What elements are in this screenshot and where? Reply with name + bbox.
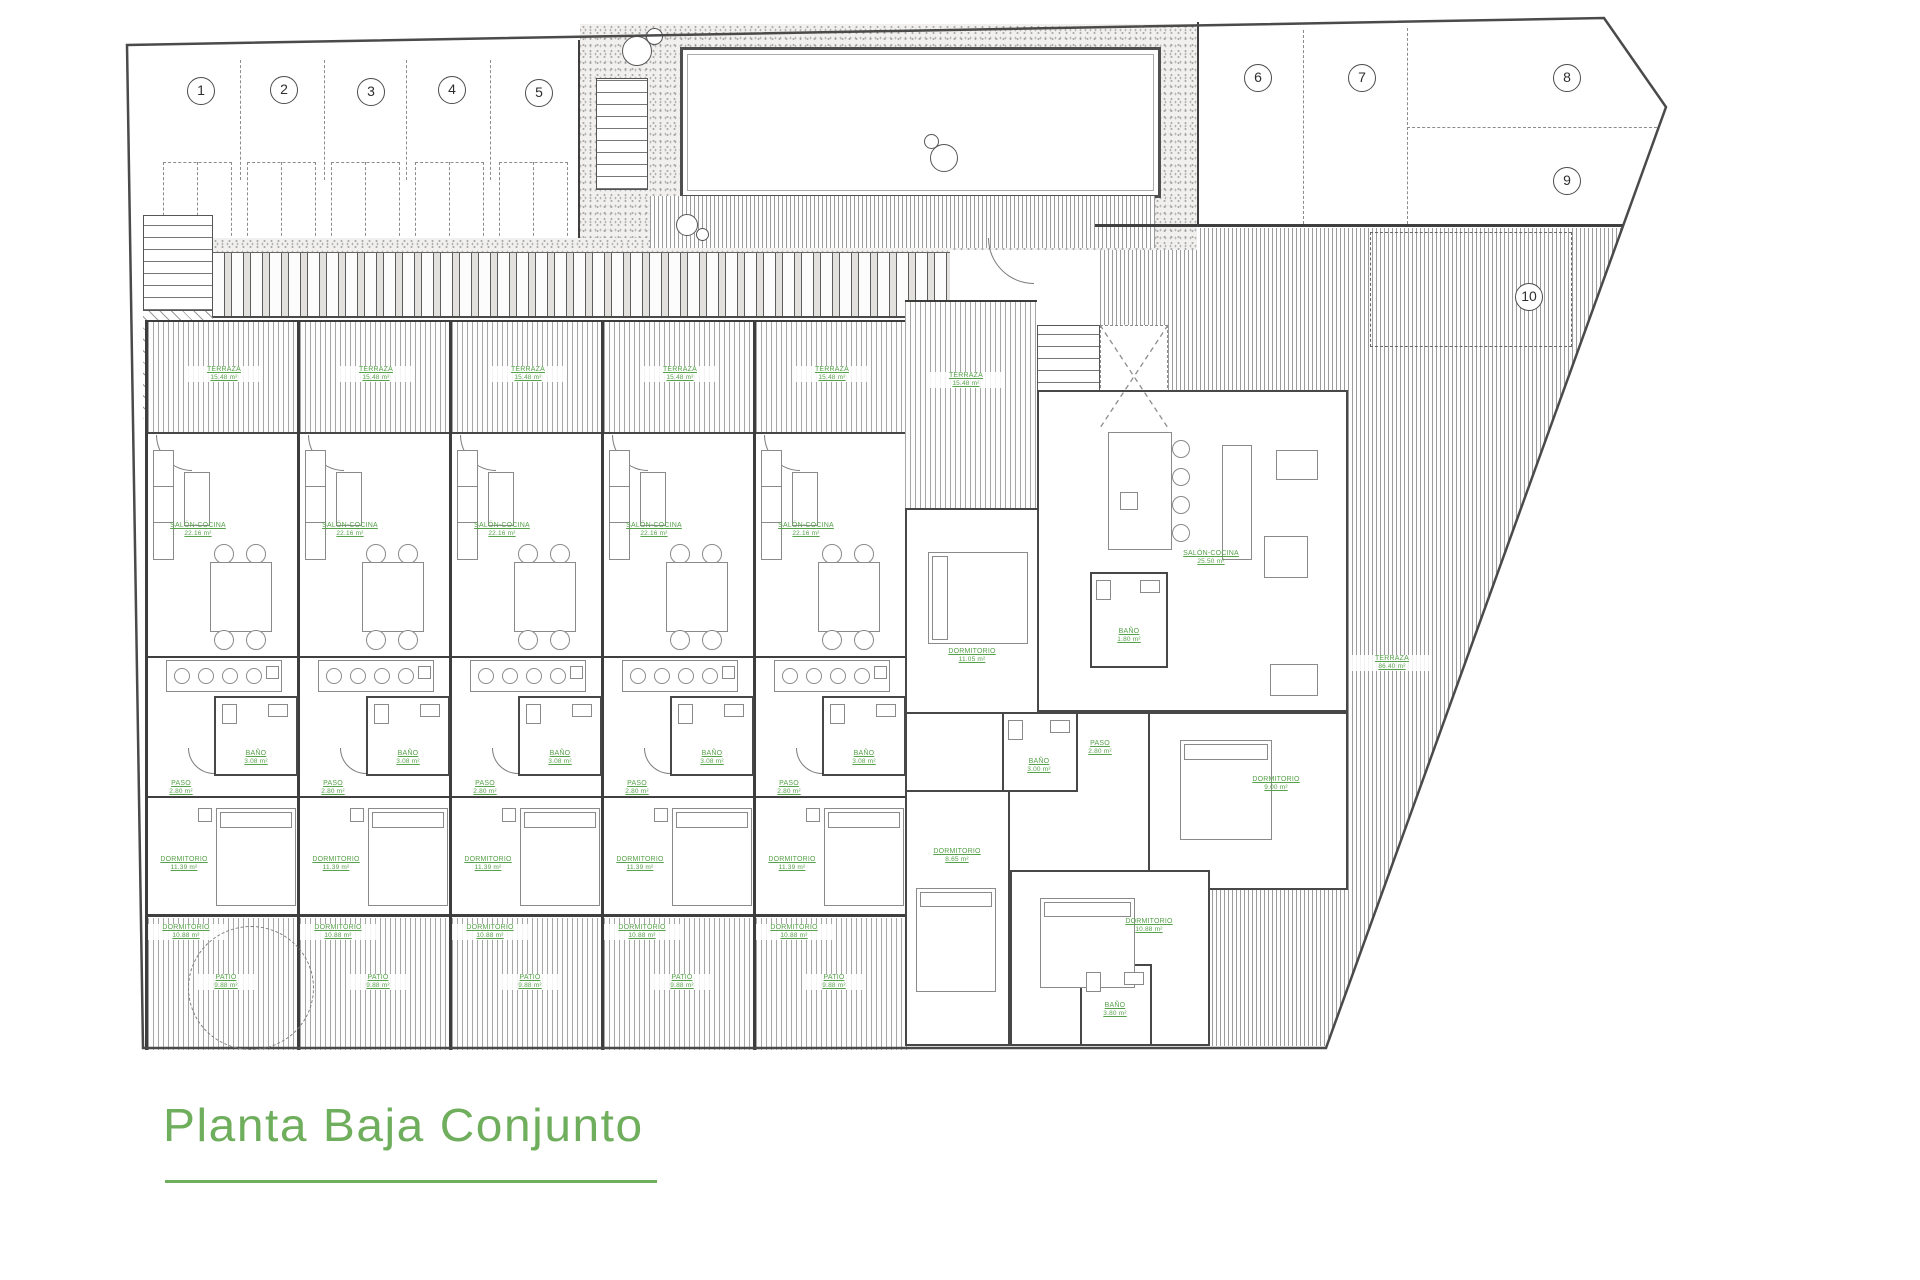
parking-divider [1407, 28, 1408, 224]
room-label-salon: SALÓN-COCINA 22.16 m² [312, 522, 388, 538]
room-label-corner-dorm-south: DORMITORIO 10.88 m² [1108, 918, 1190, 934]
island-sink [1120, 492, 1138, 510]
wall [148, 796, 300, 798]
kitchen-sink [874, 666, 887, 679]
kitchen-island [1108, 432, 1172, 550]
kitchen-sink [722, 666, 735, 679]
sofa [457, 450, 478, 560]
unit-2: TERRAZA 15.48 m² SALÓN-COCINA 22.16 m² [297, 322, 449, 1050]
sofa-cushion [457, 486, 478, 487]
sofa [761, 450, 782, 560]
room-label-corner-dorm-east: DORMITORIO 9.00 m² [1236, 776, 1316, 792]
bed-pillow [828, 812, 900, 828]
nightstand [198, 808, 212, 822]
stall-centerline [533, 162, 534, 246]
dining-chair [550, 544, 570, 564]
dining-chair [366, 630, 386, 650]
dining-chair [670, 630, 690, 650]
door-arc [988, 238, 1034, 284]
wall [756, 656, 908, 658]
unit-5: TERRAZA 15.48 m² SALÓN-COCINA 22.16 m² [753, 322, 905, 1050]
bath-sink [268, 704, 288, 717]
nightstand [502, 808, 516, 822]
dining-chair [214, 544, 234, 564]
parking-divider [406, 60, 407, 180]
room-label-terraza: TERRAZA 15.48 m² [642, 366, 718, 382]
bed-pillow [220, 812, 292, 828]
nightstand [350, 808, 364, 822]
dining-chair [366, 544, 386, 564]
room-label-paso: PASO 2.80 m² [460, 780, 510, 796]
room-label-patio: PATIO 9.88 m² [502, 974, 558, 990]
room-label-patio: PATIO 9.88 m² [654, 974, 710, 990]
stove-burner [198, 668, 214, 684]
dining-table [362, 562, 424, 632]
title-underline [165, 1180, 657, 1183]
dining-table [514, 562, 576, 632]
wall [604, 656, 756, 658]
stall-centerline [281, 162, 282, 246]
bed-pillow [524, 812, 596, 828]
room-label-terraza: TERRAZA 15.48 m² [794, 366, 870, 382]
site-plan: 1 2 3 4 5 6 7 8 9 10 TERRAZA 86.40 m² TE… [0, 0, 1920, 1280]
parking-number-10: 10 [1515, 283, 1543, 311]
bath-sink [420, 704, 440, 717]
wall [1197, 22, 1199, 226]
wall [452, 914, 604, 917]
stove-burner [654, 668, 670, 684]
bed-pillow [920, 892, 992, 907]
wall [756, 914, 908, 917]
room-label-terraza-entry: TERRAZA 15.48 m² [928, 372, 1004, 388]
tree-icon [676, 214, 698, 236]
dining-table [818, 562, 880, 632]
wall [604, 914, 756, 917]
door-arc [644, 748, 670, 774]
coffee-table [336, 472, 362, 526]
stove-burner [806, 668, 822, 684]
sofa-cushion [305, 486, 326, 487]
pergola-walkway [212, 252, 950, 318]
parking-divider [1303, 30, 1304, 224]
room-label-dormitorio-1: DORMITORIO 11.39 m² [452, 856, 524, 872]
toilet [374, 704, 389, 724]
wall [300, 656, 452, 658]
room-label-dormitorio-2: DORMITORIO 10.88 m² [756, 924, 832, 940]
wall [452, 656, 604, 658]
parking-stall-10 [1370, 232, 1572, 347]
sofa-cushion [153, 486, 174, 487]
toilet [1096, 580, 1111, 600]
kitchen-sink [266, 666, 279, 679]
parking-number-3: 3 [357, 78, 385, 106]
stove-burner [678, 668, 694, 684]
stove-burner [502, 668, 518, 684]
kitchen-sink [418, 666, 431, 679]
room-label-corner-salon: SALÓN-COCINA 25.50 m² [1168, 550, 1254, 566]
parking-number-4: 4 [438, 76, 466, 104]
room-label-corner-central-bath: BAÑO 3.00 m² [1010, 758, 1068, 774]
tree-icon [696, 228, 709, 241]
room-label-corner-entry-bath: BAÑO 1.80 m² [1100, 628, 1158, 644]
bed-pillow [676, 812, 748, 828]
bar-stool [1172, 496, 1190, 514]
bath-sink [1140, 580, 1160, 593]
tree-icon [646, 28, 663, 45]
room-label-bano: BAÑO 3.08 m² [378, 750, 438, 766]
dining-chair [398, 630, 418, 650]
armchair [1270, 664, 1318, 696]
coffee-table [184, 472, 210, 526]
stove-burner [526, 668, 542, 684]
room-label-dormitorio-1: DORMITORIO 11.39 m² [604, 856, 676, 872]
unit-4: TERRAZA 15.48 m² SALÓN-COCINA 22.16 m² [601, 322, 753, 1050]
room-label-paso: PASO 2.80 m² [612, 780, 662, 796]
parking-zone-right [1197, 22, 1657, 224]
corner-terrace-hatch [905, 300, 1037, 508]
stove-burner [478, 668, 494, 684]
coffee-table [792, 472, 818, 526]
room-label-corner-south-bath: BAÑO 3.80 m² [1086, 1002, 1144, 1018]
room-label-salon: SALÓN-COCINA 22.16 m² [616, 522, 692, 538]
room-label-dormitorio-1: DORMITORIO 11.39 m² [148, 856, 220, 872]
room-label-dormitorio-1: DORMITORIO 11.39 m² [756, 856, 828, 872]
dining-chair [702, 630, 722, 650]
pool [680, 47, 1161, 198]
pool-steps [596, 78, 648, 190]
bed-pillow [372, 812, 444, 828]
dining-chair [518, 544, 538, 564]
dining-chair [822, 630, 842, 650]
wall [148, 914, 300, 917]
stove-burner [374, 668, 390, 684]
toilet [222, 704, 237, 724]
bath-sink [1050, 720, 1070, 733]
dining-chair [854, 630, 874, 650]
room-label-corner-dorm-southwest: DORMITORIO 8.65 m² [916, 848, 998, 864]
bed-pillow [1044, 902, 1131, 917]
entry-stairs [143, 215, 213, 311]
nightstand [806, 808, 820, 822]
dining-chair [246, 544, 266, 564]
bath-sink [876, 704, 896, 717]
stove-burner [326, 668, 342, 684]
room-label-corner-paso: PASO 2.80 m² [1072, 740, 1128, 756]
parking-number-7: 7 [1348, 64, 1376, 92]
stall-centerline [449, 162, 450, 246]
room-label-salon: SALÓN-COCINA 22.16 m² [768, 522, 844, 538]
wall [148, 656, 300, 658]
stove-burner [630, 668, 646, 684]
wall [1095, 224, 1623, 227]
bath-sink [1124, 972, 1144, 985]
room-label-bano: BAÑO 3.08 m² [226, 750, 286, 766]
room-label-dormitorio-2: DORMITORIO 10.88 m² [300, 924, 376, 940]
dining-chair [214, 630, 234, 650]
door-arc [492, 748, 518, 774]
room-label-paso: PASO 2.80 m² [764, 780, 814, 796]
plan-title: Planta Baja Conjunto [163, 1098, 644, 1152]
stove-burner [398, 668, 414, 684]
stove-burner [854, 668, 870, 684]
bath-sink [572, 704, 592, 717]
parking-divider [240, 60, 241, 180]
wall [756, 796, 908, 798]
room-label-terraza: TERRAZA 15.48 m² [490, 366, 566, 382]
room-label-salon: SALÓN-COCINA 22.16 m² [464, 522, 540, 538]
stall-centerline [365, 162, 366, 246]
unit-3: TERRAZA 15.48 m² SALÓN-COCINA 22.16 m² [449, 322, 601, 1050]
parking-number-1: 1 [187, 77, 215, 105]
toilet [526, 704, 541, 724]
room-label-dormitorio-2: DORMITORIO 10.88 m² [452, 924, 528, 940]
coffee-table [1264, 536, 1308, 578]
wall [300, 796, 452, 798]
dining-chair [670, 544, 690, 564]
room-label-paso: PASO 2.80 m² [308, 780, 358, 796]
room-label-dormitorio-1: DORMITORIO 11.39 m² [300, 856, 372, 872]
dining-chair [854, 544, 874, 564]
toilet [830, 704, 845, 724]
tree-icon [924, 134, 939, 149]
room-label-terraza: TERRAZA 15.48 m² [338, 366, 414, 382]
sofa [153, 450, 174, 560]
parking-number-6: 6 [1244, 64, 1272, 92]
pool-deck-hatch [650, 196, 1155, 248]
wall [452, 796, 604, 798]
parking-number-9: 9 [1553, 167, 1581, 195]
bar-stool [1172, 468, 1190, 486]
room-label-patio: PATIO 9.88 m² [350, 974, 406, 990]
dining-chair [702, 544, 722, 564]
toilet [1008, 720, 1023, 740]
dining-chair [398, 544, 418, 564]
bath-sink [724, 704, 744, 717]
dining-chair [518, 630, 538, 650]
door-arc [796, 748, 822, 774]
stove-burner [830, 668, 846, 684]
room-label-bano: BAÑO 3.08 m² [682, 750, 742, 766]
bar-stool [1172, 524, 1190, 542]
stove-burner [702, 668, 718, 684]
patio-tree-dashed [188, 926, 314, 1050]
room-label-patio: PATIO 9.88 m² [806, 974, 862, 990]
stove-burner [782, 668, 798, 684]
parking-number-8: 8 [1553, 64, 1581, 92]
stove-burner [350, 668, 366, 684]
stove-burner [246, 668, 262, 684]
stove-burner [222, 668, 238, 684]
coffee-table [488, 472, 514, 526]
wall [300, 914, 452, 917]
toilet [678, 704, 693, 724]
armchair [1276, 450, 1318, 480]
room-label-terraza-grande: TERRAZA 86.40 m² [1352, 655, 1432, 671]
parking-divider [324, 60, 325, 180]
room-label-terraza: TERRAZA 15.48 m² [186, 366, 262, 382]
room-label-bano: BAÑO 3.08 m² [834, 750, 894, 766]
parking-divider [1407, 127, 1657, 128]
parking-number-2: 2 [270, 76, 298, 104]
kitchen-sink [570, 666, 583, 679]
sofa [305, 450, 326, 560]
stove-burner [174, 668, 190, 684]
parking-number-5: 5 [525, 79, 553, 107]
door-arc [188, 748, 214, 774]
sofa-cushion [761, 486, 782, 487]
bar-stool [1172, 440, 1190, 458]
room-label-dormitorio-2: DORMITORIO 10.88 m² [604, 924, 680, 940]
room-label-corner-dorm-west: DORMITORIO 11.05 m² [932, 648, 1012, 664]
stove-burner [550, 668, 566, 684]
dining-chair [550, 630, 570, 650]
sofa-cushion [609, 486, 630, 487]
dining-chair [246, 630, 266, 650]
nightstand [654, 808, 668, 822]
wall [604, 796, 756, 798]
dining-table [210, 562, 272, 632]
coffee-table [640, 472, 666, 526]
dining-table [666, 562, 728, 632]
bed-pillow [932, 556, 948, 640]
dining-chair [822, 544, 842, 564]
sofa [1222, 445, 1252, 560]
room-label-paso: PASO 2.80 m² [156, 780, 206, 796]
door-arc [340, 748, 366, 774]
parking-divider [490, 60, 491, 180]
toilet [1086, 972, 1101, 992]
sofa [609, 450, 630, 560]
room-label-salon: SALÓN-COCINA 22.16 m² [160, 522, 236, 538]
bed-pillow [1184, 744, 1268, 760]
room-label-bano: BAÑO 3.08 m² [530, 750, 590, 766]
